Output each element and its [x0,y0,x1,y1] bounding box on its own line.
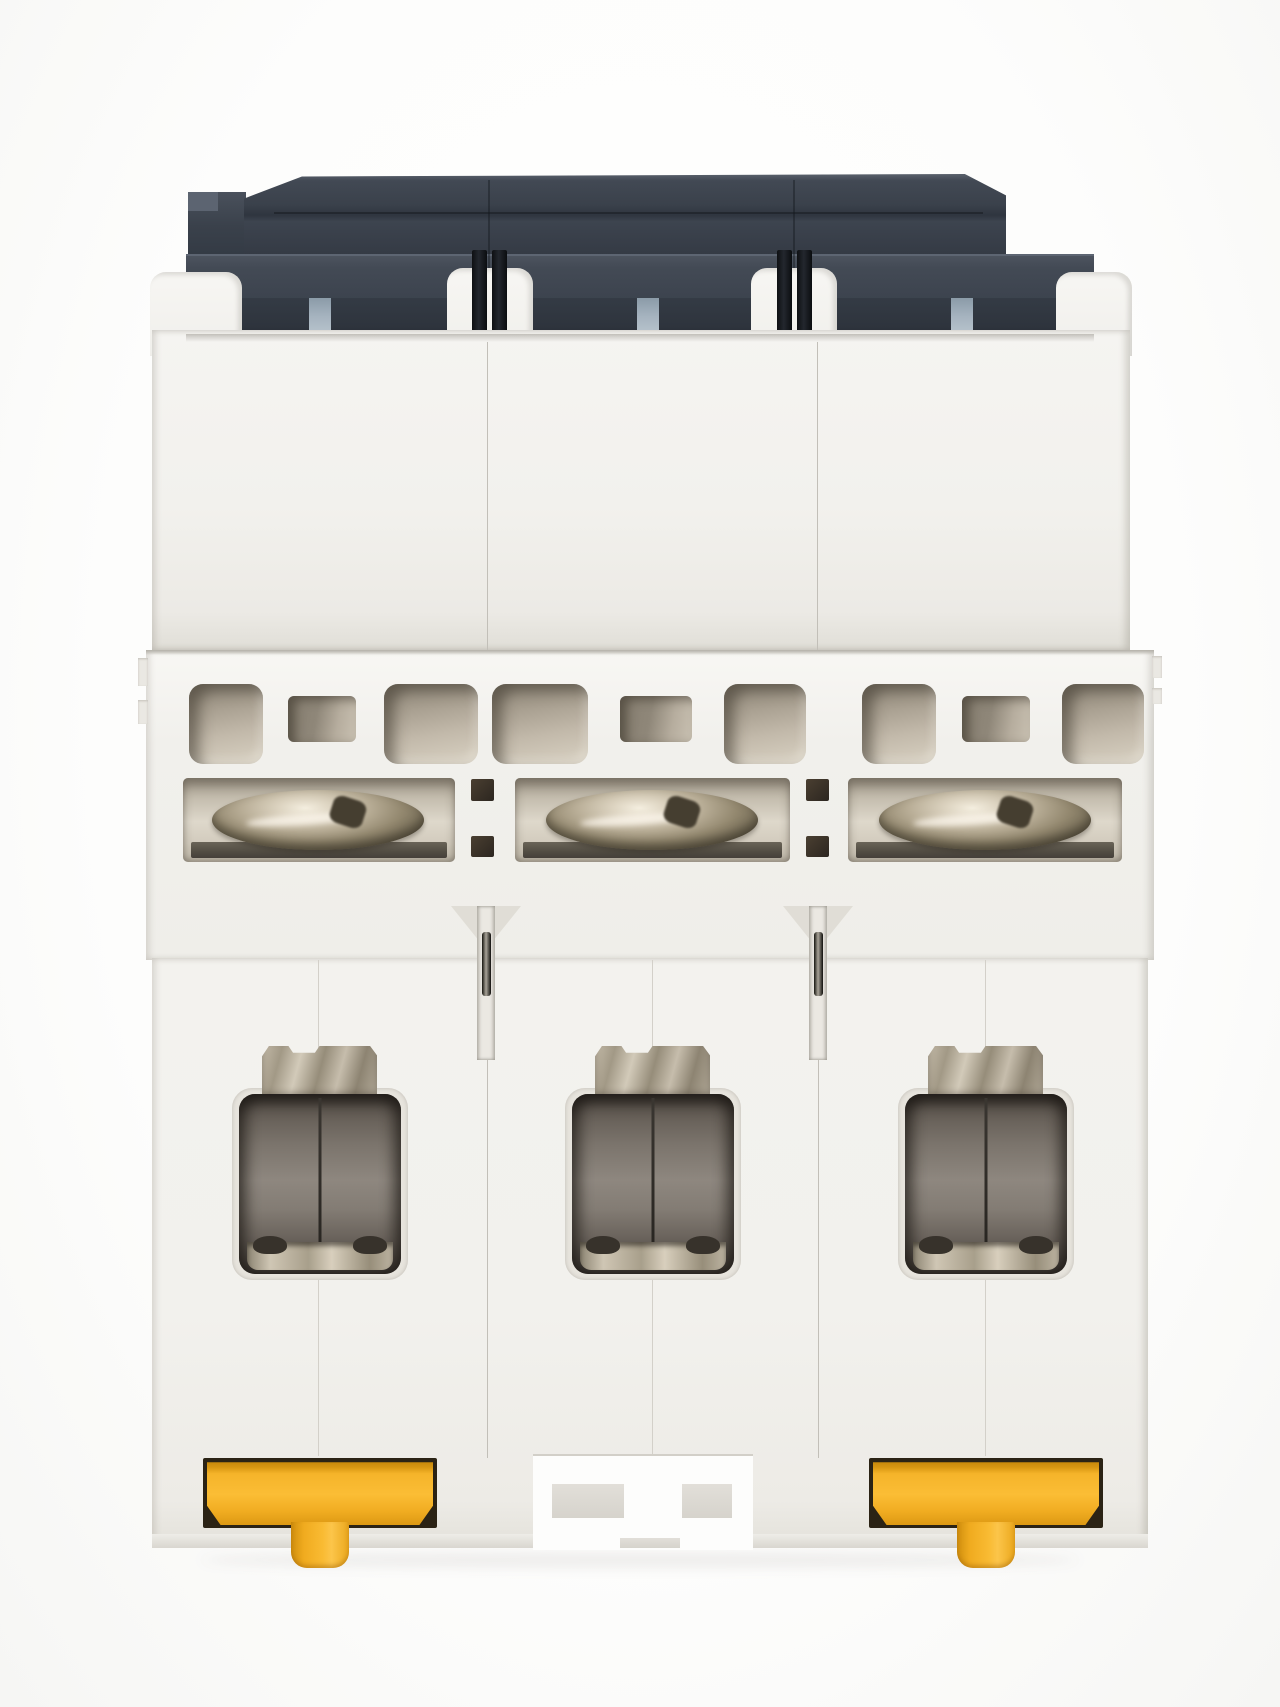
terminal-clamp-metal [913,1242,1059,1270]
terminal-clamp-metal [580,1242,726,1270]
seam-hole [471,836,494,857]
din-clip-tab-right [957,1522,1015,1568]
pole-link-pin [472,250,487,338]
vent-window [620,696,692,742]
left-edge-tab [138,658,148,686]
din-clip-tab-left [291,1522,349,1568]
seam-hole [806,779,829,801]
module-seam [487,342,488,650]
vent-window [288,696,356,742]
left-edge-tab [138,700,148,724]
housing-upper [152,330,1130,650]
clamp-plate [595,1046,710,1098]
top-cover-left-step [188,192,246,254]
din-notch-stem-shadow [620,1538,680,1548]
module-seam [817,342,818,650]
cap-shadow [186,334,1094,342]
roof-seam-line [274,212,983,214]
pole-link-pin [797,250,812,338]
arc-vent [724,684,806,764]
top-cover-roof [244,174,1006,256]
pole-link-pin [492,250,507,338]
seam-hole [471,779,494,801]
terminal-screw [212,790,424,850]
clamp-plate [928,1046,1043,1098]
terminal-clamp-metal [247,1242,393,1270]
arc-vent [492,684,588,764]
terminal-screw [879,790,1091,850]
vent-window [962,696,1030,742]
arc-vent [862,684,936,764]
terminal-screw [546,790,758,850]
din-notch-step [552,1484,624,1518]
right-edge-tab [1152,688,1162,704]
ledge-shadow [146,650,1154,655]
clamp-plate [262,1046,377,1098]
photo-stage [0,0,1280,1707]
arc-vent [1062,684,1144,764]
terminal-opening [572,1094,734,1274]
pole-channel-pin [814,932,823,996]
top-cover-band [186,254,1094,300]
pole-channel-pin [482,932,491,996]
terminal-opening [239,1094,401,1274]
arc-vent [384,684,478,764]
din-clip-right [873,1461,1099,1525]
terminal-opening [905,1094,1067,1274]
right-edge-tab [1152,656,1162,678]
seam-hole [806,836,829,857]
arc-vent [189,684,263,764]
din-clip-left [207,1461,433,1525]
din-notch-step [682,1484,732,1518]
pole-link-pin [777,250,792,338]
